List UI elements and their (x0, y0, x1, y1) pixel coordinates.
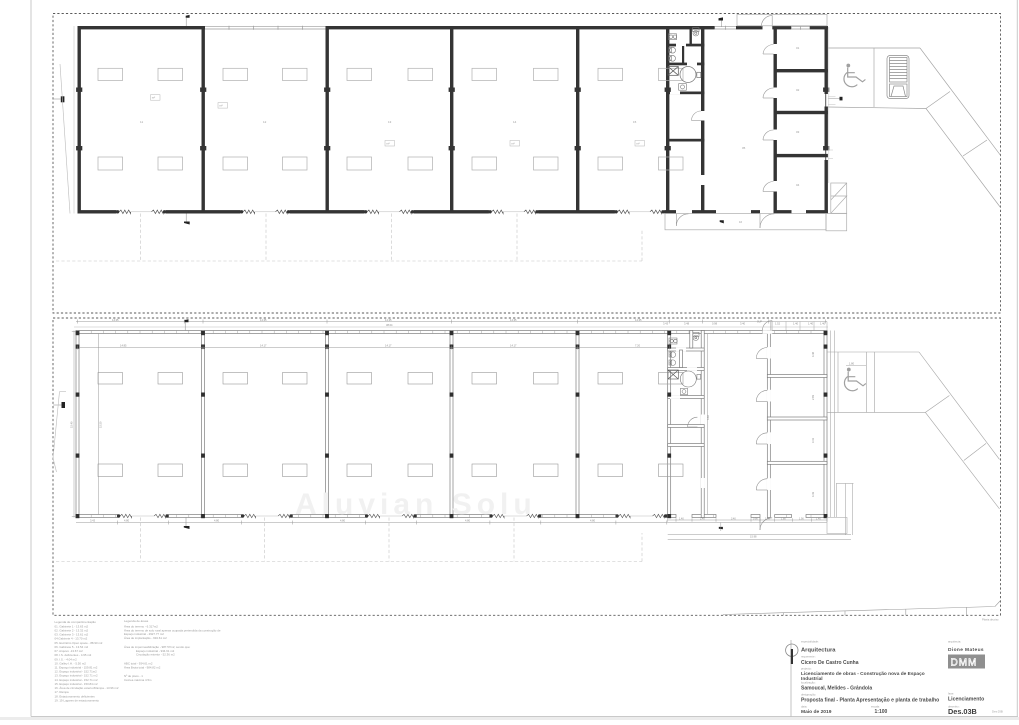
svg-text:Cicero De Castro Cunha: Cicero De Castro Cunha (801, 660, 859, 666)
svg-text:14.35: 14.35 (635, 318, 642, 322)
svg-text:designação:: designação: (801, 693, 816, 697)
svg-text:4.43: 4.43 (811, 491, 815, 497)
svg-text:1.40: 1.40 (808, 322, 814, 326)
svg-text:data:: data: (801, 704, 807, 708)
svg-text:Aluvian Solu: Aluvian Solu (295, 488, 537, 521)
svg-text:01: 01 (796, 46, 800, 50)
svg-text:0.98: 0.98 (712, 322, 718, 326)
svg-text:16: 16 (739, 220, 743, 224)
svg-text:14.17: 14.17 (510, 343, 517, 347)
svg-text:3.40: 3.40 (731, 517, 736, 520)
svg-text:14.17: 14.17 (260, 343, 267, 347)
svg-text:14.35: 14.35 (260, 318, 267, 322)
svg-text:15.98: 15.98 (750, 535, 757, 539)
svg-text:requerente :: requerente : (801, 655, 816, 659)
svg-text:4.80: 4.80 (214, 518, 220, 522)
svg-text:Área Bruta total - 984.82 m2: Área Bruta total - 984.82 m2 (124, 665, 161, 669)
svg-text:1.90: 1.90 (799, 517, 804, 520)
svg-text:m²: m² (219, 104, 223, 108)
svg-text:02: 02 (796, 88, 800, 92)
svg-text:arquitecta:: arquitecta: (948, 640, 961, 644)
svg-text:Circulação exterior - 52.36 m2: Circulação exterior - 52.36 m2 (136, 653, 175, 657)
svg-text:2.40: 2.40 (700, 517, 705, 520)
svg-text:3.48: 3.48 (684, 322, 690, 326)
svg-text:Maio de 2019: Maio de 2019 (801, 709, 832, 715)
svg-text:03: 03 (796, 130, 800, 134)
svg-text:1.80: 1.80 (849, 362, 855, 366)
svg-text:4.80: 4.80 (590, 518, 596, 522)
svg-text:19. 19 Lugares de estacionamen: 19. 19 Lugares de estacionamento (55, 699, 100, 703)
svg-text:Licenciamento: Licenciamento (948, 697, 984, 703)
svg-text:localização:: localização: (801, 680, 816, 684)
svg-text:Planta de piso: Planta de piso (982, 618, 999, 622)
svg-text:15.50: 15.50 (99, 421, 103, 428)
svg-text:SUP: SUP (757, 320, 762, 323)
svg-text:Des.03B: Des.03B (992, 710, 1003, 714)
svg-text:38.04: 38.04 (386, 323, 393, 327)
svg-text:05: 05 (742, 146, 746, 150)
svg-text:Área de implantação - 934.61 m: Área de implantação - 934.61 m2 (124, 636, 167, 640)
svg-text:projecto:: projecto: (801, 667, 812, 671)
svg-text:04: 04 (796, 183, 800, 187)
svg-text:1.40: 1.40 (793, 322, 799, 326)
svg-text:especialidade:: especialidade: (801, 640, 819, 644)
svg-text:Legenda de áreas: Legenda de áreas (124, 619, 149, 623)
svg-text:Samoucal, Melides - Grândola: Samoucal, Melides - Grândola (801, 685, 872, 691)
svg-text:Dione Mateus: Dione Mateus (948, 647, 984, 653)
svg-text:1.52: 1.52 (775, 322, 781, 326)
svg-text:14.85: 14.85 (120, 343, 127, 347)
svg-text:13: 13 (388, 120, 392, 124)
svg-text:14: 14 (513, 120, 517, 124)
svg-text:15.40: 15.40 (70, 421, 74, 428)
svg-text:DMM: DMM (951, 658, 978, 669)
svg-text:1.80: 1.80 (781, 517, 786, 520)
svg-text:12: 12 (263, 120, 267, 124)
svg-text:Des.03B: Des.03B (948, 707, 977, 716)
svg-text:3.43: 3.43 (90, 518, 96, 522)
svg-text:7.20: 7.20 (635, 343, 641, 347)
svg-text:Arquitectura: Arquitectura (801, 647, 836, 653)
svg-text:14.35: 14.35 (385, 318, 392, 322)
svg-text:fase:: fase: (948, 692, 954, 696)
svg-text:m²: m² (386, 142, 390, 146)
svg-text:0.90: 0.90 (753, 517, 758, 520)
svg-text:4.46: 4.46 (811, 351, 815, 357)
svg-text:m²: m² (636, 142, 640, 146)
svg-text:Proposta final - Planta Aprese: Proposta final - Planta Apresentação e p… (801, 697, 939, 703)
svg-text:escala:: escala: (871, 704, 880, 708)
svg-text:1.40: 1.40 (816, 517, 821, 520)
svg-text:1.40: 1.40 (679, 517, 684, 520)
svg-text:1.40: 1.40 (765, 517, 770, 520)
svg-text:3.43: 3.43 (663, 322, 669, 326)
svg-text:Cércea máxima 4.5m: Cércea máxima 4.5m (124, 678, 152, 682)
svg-text:14.17: 14.17 (385, 343, 392, 347)
svg-text:m²: m² (511, 142, 515, 146)
svg-text:3.40: 3.40 (740, 322, 746, 326)
svg-text:4.80: 4.80 (124, 518, 130, 522)
svg-text:1.40: 1.40 (820, 322, 826, 326)
svg-text:14.35: 14.35 (112, 318, 119, 322)
svg-text:11: 11 (140, 120, 143, 124)
svg-text:3.41: 3.41 (811, 437, 815, 443)
svg-text:m²: m² (152, 96, 156, 100)
svg-text:15: 15 (633, 120, 637, 124)
svg-text:3.60: 3.60 (707, 415, 710, 420)
svg-text:2.83: 2.83 (811, 394, 815, 400)
svg-text:14.35: 14.35 (510, 318, 517, 322)
svg-text:1:100: 1:100 (875, 709, 888, 715)
